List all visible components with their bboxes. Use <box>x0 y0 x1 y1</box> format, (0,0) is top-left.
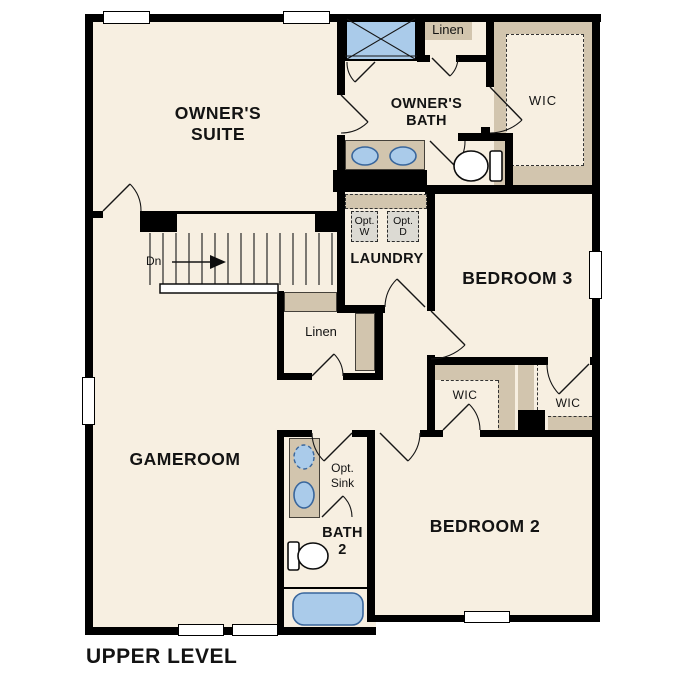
bath2-vanity <box>289 438 320 518</box>
label-line: Dn <box>146 254 161 268</box>
label-line: WIC <box>529 93 557 108</box>
wall <box>352 430 368 437</box>
wall <box>315 211 338 232</box>
label-line: D <box>399 227 407 238</box>
wall <box>277 373 312 380</box>
wall <box>518 410 545 433</box>
label-line: BATH <box>406 113 447 129</box>
wall <box>592 14 600 622</box>
label-line: Linen <box>432 22 464 37</box>
opt-washer-box: Opt. W <box>351 211 378 242</box>
label-line: WIC <box>453 388 478 402</box>
wall <box>427 365 435 430</box>
label-line: Opt. <box>331 461 354 475</box>
label-linen-mid: Linen <box>291 324 351 339</box>
wall <box>85 627 376 635</box>
linen-mid-shelf-top <box>284 292 337 312</box>
label-line: 2 <box>338 542 346 558</box>
wic-left-shelf-dash2 <box>498 380 499 428</box>
shower <box>345 17 417 61</box>
label-bedroom3: BEDROOM 3 <box>435 268 600 289</box>
wic-mid-shelf-column <box>518 363 534 410</box>
label-line: GAMEROOM <box>130 449 241 469</box>
wall <box>417 55 430 62</box>
label-line: Sink <box>331 476 354 490</box>
window <box>82 377 95 425</box>
label-owners-bath: OWNER'S BATH <box>378 96 475 130</box>
label-line: W <box>360 227 370 238</box>
label-bath2: BATH 2 <box>315 525 370 559</box>
label-line: UPPER LEVEL <box>86 645 237 668</box>
wall <box>333 170 427 192</box>
label-line: Opt. <box>393 216 413 227</box>
window <box>232 624 278 636</box>
label-stairs-dn: Dn <box>146 254 170 269</box>
wall <box>375 313 383 373</box>
window <box>464 611 510 623</box>
wall <box>486 14 494 87</box>
label-line: BEDROOM 2 <box>430 516 540 536</box>
wall <box>277 430 284 628</box>
label-line: BEDROOM 3 <box>462 268 572 288</box>
linen-mid-shelf-right <box>355 313 375 371</box>
wall <box>343 373 383 380</box>
laundry-counter <box>345 194 427 209</box>
wall <box>420 430 443 437</box>
wall <box>85 14 93 635</box>
label-line: WIC <box>556 396 581 410</box>
wic-left-shelf-top <box>433 365 515 380</box>
owners-bath-vanity <box>345 140 425 170</box>
label-line: LAUNDRY <box>350 251 423 267</box>
wic-right-shelf-dash <box>548 416 592 417</box>
label-opt-sink: Opt. Sink <box>320 461 365 491</box>
label-bedroom2: BEDROOM 2 <box>400 516 570 537</box>
floor-plan: Opt. W Opt. D <box>0 0 687 687</box>
wall <box>337 14 345 95</box>
label-line: SUITE <box>191 124 245 144</box>
wall <box>427 357 548 365</box>
label-line: OWNER'S <box>175 103 261 123</box>
label-wic-top: WIC <box>513 93 573 108</box>
label-linen-top: Linen <box>423 22 473 37</box>
wall <box>284 587 367 589</box>
wic-left-shelf-right <box>498 380 515 430</box>
label-line: Opt. <box>355 216 375 227</box>
wall <box>425 185 600 194</box>
page-title: UPPER LEVEL <box>86 645 326 669</box>
label-laundry: LAUNDRY <box>337 251 437 268</box>
label-wic-left: WIC <box>442 388 488 403</box>
wall <box>277 291 284 380</box>
opt-dryer-box: Opt. D <box>387 211 419 242</box>
label-owners-suite: OWNER'S SUITE <box>148 103 288 145</box>
wall <box>481 127 490 135</box>
wic-mid-shelf-dash <box>537 363 538 410</box>
wall <box>337 305 385 313</box>
window <box>178 624 224 636</box>
wall <box>93 211 103 218</box>
label-wic-right: WIC <box>545 396 591 411</box>
label-line: OWNER'S <box>391 96 463 112</box>
wall <box>590 357 600 365</box>
window <box>103 11 150 24</box>
wall <box>140 211 177 232</box>
label-line: Linen <box>305 324 337 339</box>
wall <box>284 430 312 437</box>
window <box>283 11 330 24</box>
label-gameroom: GAMEROOM <box>110 449 260 470</box>
wic-right-shelf <box>548 416 592 430</box>
label-line: BATH <box>322 525 363 541</box>
wic-left-shelf-dash <box>441 380 498 381</box>
